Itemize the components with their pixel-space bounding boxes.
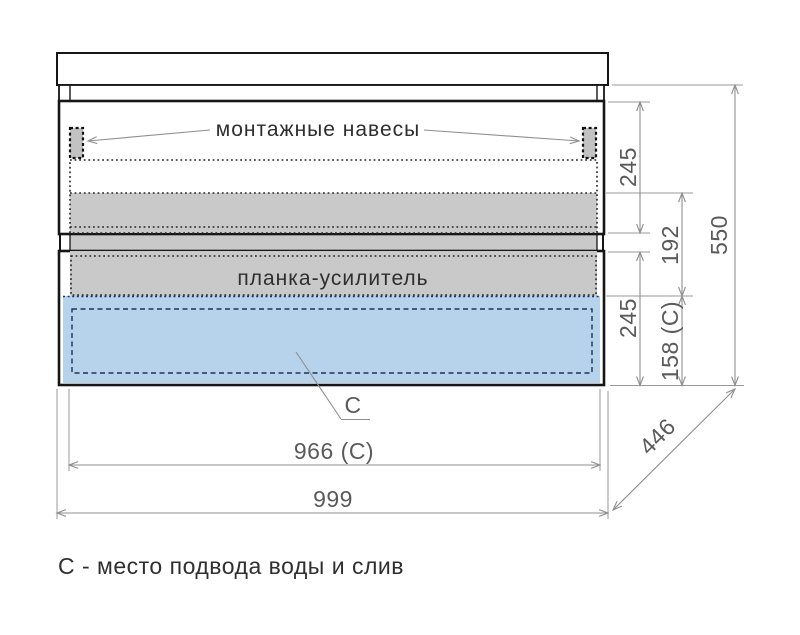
technical-drawing-page: монтажные навесы планка-усилитель С 245 … [0,0,800,635]
dim-245-bottom: 245 [615,298,641,338]
bottom-drawer-interior: планка-усилитель С [63,251,600,420]
cabinet-drawing: монтажные навесы планка-усилитель С 245 … [0,0,800,635]
countertop [57,53,608,85]
drawer-gap-strip [70,234,597,251]
hangers-label: монтажные навесы [216,118,421,141]
dim-999: 999 [313,486,353,512]
c-marker-label: С [344,392,361,418]
dim-line-446 [613,389,735,510]
mounting-hanger-right [583,128,596,158]
dim-158c: 158 (С) [657,301,683,381]
dim-446: 446 [634,413,681,460]
dim-550: 550 [706,215,732,255]
dim-192: 192 [657,225,683,265]
mounting-hanger-left [70,128,83,158]
reinforcement-label: планка-усилитель [237,267,428,290]
horizontal-dimensions: 966 (С) 999 446 [57,389,735,519]
drawing-caption: С - место подвода воды и слив [58,553,404,579]
dim-966c: 966 (С) [294,438,374,464]
vertical-dimensions: 245 192 245 158 (С) 550 [606,85,744,386]
carcass-top-rail [59,85,604,101]
dim-245-top: 245 [615,147,641,187]
